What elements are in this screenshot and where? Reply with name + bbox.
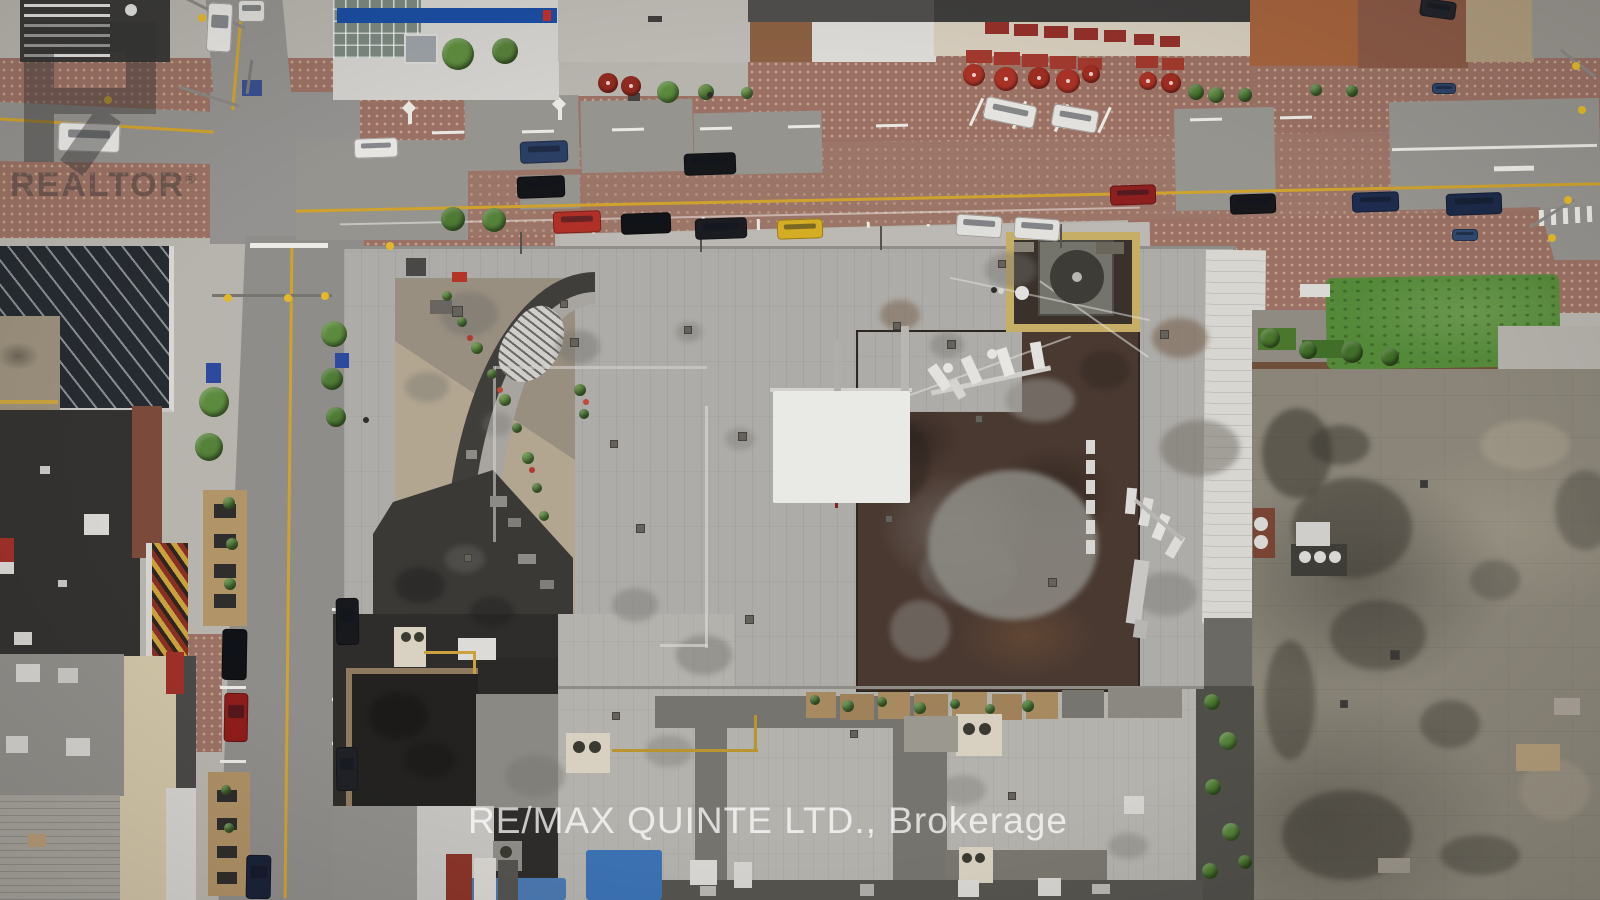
patio-umbrella	[621, 76, 641, 96]
car	[246, 855, 272, 899]
tree	[1341, 341, 1363, 363]
flower-planter	[529, 467, 535, 473]
tree	[741, 87, 753, 99]
structure	[214, 564, 236, 578]
car	[1432, 83, 1456, 94]
structure	[1516, 744, 1560, 771]
structure	[458, 638, 496, 660]
structure	[1133, 619, 1148, 639]
tree	[1219, 732, 1237, 750]
tree	[1188, 84, 1204, 100]
structure	[1253, 508, 1275, 558]
tree	[321, 321, 347, 347]
tree	[492, 38, 518, 64]
equip-fan	[1299, 551, 1311, 563]
tree	[877, 697, 887, 707]
tree	[1204, 694, 1220, 710]
patio-umbrella	[1028, 67, 1050, 89]
tree	[457, 317, 467, 327]
car	[955, 213, 1002, 238]
structure	[1086, 520, 1095, 534]
structure	[16, 664, 40, 682]
roof-vent	[850, 730, 858, 738]
roof-vent	[610, 440, 618, 448]
equip-fan	[1072, 272, 1082, 282]
structure	[473, 654, 476, 674]
registered-trademark-icon: ®	[185, 171, 197, 187]
equip-fan	[401, 632, 411, 642]
structure	[645, 880, 1203, 900]
roof-vent	[1420, 480, 1428, 488]
car	[336, 747, 359, 791]
structure	[493, 366, 496, 542]
car	[1352, 191, 1400, 213]
structure	[1014, 24, 1038, 36]
car	[238, 0, 265, 22]
tree	[1310, 84, 1322, 96]
structure	[1086, 500, 1095, 514]
tree	[199, 387, 229, 417]
tree	[1238, 855, 1252, 869]
structure	[0, 538, 14, 562]
structure	[543, 10, 551, 21]
tree	[1299, 341, 1317, 359]
tree	[224, 823, 234, 833]
structure	[430, 300, 452, 314]
equip-fan	[979, 723, 991, 735]
roof-vent	[1160, 330, 1169, 339]
traffic-light	[1564, 196, 1572, 204]
structure	[14, 632, 32, 645]
structure	[1554, 698, 1580, 715]
roof-vent	[612, 712, 620, 720]
brokerage-watermark-text: RE/MAX QUINTE LTD., Brokerage	[468, 800, 1068, 842]
structure	[660, 644, 708, 647]
structure	[1086, 460, 1095, 474]
structure	[1160, 36, 1180, 47]
car	[354, 137, 399, 159]
structure	[586, 850, 662, 900]
tree	[499, 394, 511, 406]
structure	[1074, 28, 1098, 40]
car	[1446, 192, 1503, 216]
tree	[442, 38, 474, 70]
structure	[773, 391, 910, 503]
traffic-light	[386, 242, 394, 250]
structure	[424, 651, 476, 654]
tree	[914, 702, 926, 714]
equip-fan	[1254, 517, 1268, 531]
tree	[512, 423, 522, 433]
realtor-watermark-logo: REALTOR®	[10, 8, 220, 228]
roof-vent	[1340, 700, 1348, 708]
car	[222, 629, 248, 680]
structure	[1050, 56, 1076, 69]
roof-vent	[885, 515, 893, 523]
structure	[66, 738, 90, 756]
structure	[206, 363, 221, 383]
patio-umbrella	[598, 73, 618, 93]
tree	[1208, 87, 1224, 103]
tree	[1202, 863, 1218, 879]
tree	[224, 578, 236, 590]
structure	[1104, 30, 1126, 42]
roof-vent	[893, 322, 901, 330]
structure	[700, 886, 716, 896]
patio-umbrella	[1056, 69, 1080, 93]
structure	[58, 580, 67, 587]
tree	[950, 699, 960, 709]
tree	[1260, 328, 1280, 348]
structure	[335, 353, 349, 368]
structure	[520, 232, 522, 254]
car	[982, 96, 1038, 129]
tree	[487, 369, 497, 379]
structure	[1062, 690, 1104, 718]
car	[1452, 229, 1478, 241]
roof-vent	[998, 260, 1006, 268]
structure	[754, 715, 757, 752]
tree	[441, 207, 465, 231]
tree	[842, 700, 854, 712]
structure	[1096, 242, 1124, 254]
structure	[518, 554, 536, 564]
patio-umbrella	[1161, 73, 1181, 93]
structure	[474, 858, 496, 900]
roof-vent	[975, 415, 983, 423]
structure	[1378, 858, 1410, 873]
structure	[495, 366, 707, 369]
pedestrian	[363, 417, 369, 423]
equip-fan	[975, 853, 985, 863]
structure	[1014, 242, 1034, 252]
structure	[58, 668, 78, 683]
structure	[1162, 58, 1184, 70]
traffic-light	[224, 294, 232, 302]
tree	[326, 407, 346, 427]
structure	[1300, 284, 1330, 297]
tree	[195, 433, 223, 461]
roof-vent	[570, 338, 579, 347]
tree	[574, 384, 586, 396]
structure	[985, 22, 1009, 34]
roof-vent	[1390, 650, 1400, 660]
tree	[532, 483, 542, 493]
structure	[1044, 26, 1068, 38]
structure	[690, 860, 717, 885]
structure	[956, 714, 1002, 756]
structure	[40, 466, 50, 474]
structure	[1092, 884, 1110, 894]
structure	[540, 580, 554, 589]
car	[1230, 193, 1277, 215]
structure	[452, 272, 467, 282]
structure	[901, 326, 909, 400]
structure	[612, 749, 758, 752]
realtor-watermark-text: REALTOR®	[10, 166, 198, 205]
car	[336, 598, 360, 645]
tree	[471, 342, 483, 354]
car	[777, 218, 824, 240]
structure	[1108, 688, 1182, 718]
tree	[1205, 779, 1221, 795]
tree	[221, 785, 231, 795]
structure	[490, 496, 507, 507]
patio-umbrella	[963, 64, 985, 86]
car	[1110, 184, 1157, 206]
car	[684, 152, 737, 176]
patio-umbrella	[1082, 65, 1100, 83]
pedestrian	[707, 92, 713, 98]
equip-fan	[943, 363, 953, 373]
structure	[466, 450, 477, 459]
structure	[1086, 440, 1095, 454]
structure	[1124, 796, 1144, 814]
car	[224, 693, 249, 742]
traffic-light	[284, 294, 292, 302]
tree	[1346, 85, 1358, 97]
logo-r-stroke	[126, 22, 156, 94]
equip-fan	[987, 349, 997, 359]
structure	[966, 50, 992, 63]
logo-r-stroke	[24, 88, 156, 114]
tree	[1222, 823, 1240, 841]
structure	[648, 16, 662, 22]
tree	[442, 291, 452, 301]
structure	[1022, 54, 1048, 67]
patio-umbrella	[1139, 72, 1157, 90]
tree	[482, 208, 506, 232]
roof-vent	[745, 615, 754, 624]
structure	[1086, 540, 1095, 554]
car	[553, 210, 602, 234]
equip-fan	[1329, 551, 1341, 563]
structure	[1038, 878, 1061, 896]
roof-vent	[684, 326, 692, 334]
traffic-light	[1578, 106, 1586, 114]
tree	[1022, 700, 1034, 712]
car	[621, 212, 672, 235]
traffic-light	[1548, 234, 1556, 242]
structure	[1060, 224, 1062, 248]
pedestrian	[998, 288, 1004, 294]
roof-vent	[636, 524, 645, 533]
structure	[217, 872, 237, 884]
car	[520, 140, 569, 164]
structure	[904, 716, 958, 752]
flower-planter	[583, 399, 589, 405]
tree	[522, 452, 534, 464]
equip-fan	[589, 741, 601, 753]
roof-vent	[452, 306, 463, 317]
structure	[566, 733, 610, 773]
equip-fan	[1314, 551, 1326, 563]
structure	[1134, 34, 1154, 45]
structure	[214, 594, 236, 608]
structure	[446, 854, 472, 900]
tree	[321, 368, 343, 390]
structure	[734, 862, 752, 888]
tree	[810, 695, 820, 705]
structure	[958, 880, 979, 897]
tree	[1238, 88, 1252, 102]
structure	[217, 846, 237, 858]
roof-vent	[947, 340, 956, 349]
traffic-light	[1572, 62, 1580, 70]
structure	[880, 226, 882, 250]
flower-planter	[497, 387, 503, 393]
structure	[1296, 522, 1330, 546]
equip-fan	[1254, 535, 1268, 549]
structure	[406, 258, 426, 276]
equip-fan	[414, 632, 424, 642]
objects-layer	[0, 0, 1600, 900]
car	[1013, 216, 1060, 241]
aerial-drone-photo: REALTOR® RE/MAX QUINTE LTD., Brokerage	[0, 0, 1600, 900]
structure	[1086, 480, 1095, 494]
roof-vent	[1008, 792, 1016, 800]
structure	[0, 562, 14, 574]
car	[695, 217, 748, 240]
structure	[705, 406, 708, 648]
tree	[226, 538, 238, 550]
pedestrian	[991, 287, 997, 293]
tree	[539, 511, 549, 521]
structure	[6, 736, 28, 753]
structure	[508, 518, 521, 527]
tree	[985, 704, 995, 714]
roof-vent	[560, 300, 568, 308]
roof-vent	[1048, 578, 1057, 587]
equip-fan	[962, 853, 972, 863]
structure	[166, 652, 184, 694]
tree	[657, 81, 679, 103]
traffic-light	[321, 292, 329, 300]
structure	[994, 52, 1020, 65]
car	[1419, 0, 1457, 20]
car	[1050, 103, 1099, 134]
tree	[223, 497, 235, 509]
equip-fan	[500, 846, 512, 858]
tree	[579, 409, 589, 419]
equip-fan	[963, 723, 975, 735]
structure	[84, 514, 109, 535]
roof-vent	[738, 432, 747, 441]
patio-umbrella	[994, 67, 1018, 91]
structure	[1126, 559, 1150, 624]
equip-fan	[1015, 286, 1029, 300]
structure	[860, 884, 874, 896]
structure	[498, 860, 518, 900]
car	[517, 175, 566, 199]
structure	[28, 834, 46, 847]
structure	[1136, 56, 1158, 68]
roof-vent	[464, 554, 472, 562]
structure	[0, 400, 58, 404]
flower-planter	[467, 335, 473, 341]
equip-fan	[573, 741, 585, 753]
tree	[1381, 348, 1399, 366]
